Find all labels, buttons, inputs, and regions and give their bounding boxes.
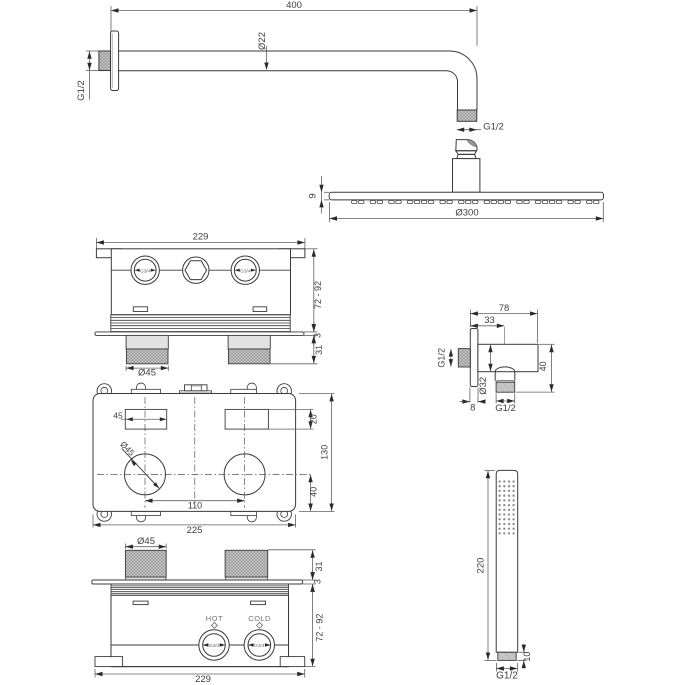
svg-text:Ø45: Ø45 xyxy=(138,368,156,379)
svg-text:40: 40 xyxy=(538,361,548,371)
svg-text:HOT: HOT xyxy=(206,614,223,623)
svg-text:G3/4: G3/4 xyxy=(209,643,220,649)
svg-text:40: 40 xyxy=(309,487,319,497)
svg-text:20: 20 xyxy=(309,414,319,424)
svg-text:72 - 92: 72 - 92 xyxy=(315,614,325,642)
svg-text:Ø32: Ø32 xyxy=(478,377,489,395)
svg-text:229: 229 xyxy=(195,674,211,685)
svg-text:400: 400 xyxy=(286,0,302,11)
svg-text:130: 130 xyxy=(319,445,329,460)
svg-text:229: 229 xyxy=(193,232,209,243)
svg-text:G3/4: G3/4 xyxy=(240,268,251,274)
svg-text:3: 3 xyxy=(313,579,323,584)
svg-text:31: 31 xyxy=(314,561,324,571)
svg-text:G1/2: G1/2 xyxy=(495,403,516,414)
svg-text:72 - 92: 72 - 92 xyxy=(313,281,323,309)
svg-text:G1/2: G1/2 xyxy=(76,80,87,101)
svg-text:Ø300: Ø300 xyxy=(455,208,478,219)
svg-text:COLD: COLD xyxy=(248,614,271,623)
svg-text:G1/2: G1/2 xyxy=(436,348,446,368)
svg-text:10: 10 xyxy=(522,652,532,662)
svg-text:8: 8 xyxy=(470,402,475,413)
svg-text:110: 110 xyxy=(188,500,202,510)
svg-text:78: 78 xyxy=(499,303,510,314)
svg-text:220: 220 xyxy=(476,558,487,574)
svg-text:225: 225 xyxy=(187,525,203,536)
svg-text:G1/2: G1/2 xyxy=(483,122,504,133)
svg-text:G1/2: G1/2 xyxy=(496,671,518,682)
svg-text:Ø45: Ø45 xyxy=(137,536,155,547)
svg-text:45: 45 xyxy=(113,410,123,420)
svg-text:G3/4: G3/4 xyxy=(140,268,151,274)
svg-text:G3/4: G3/4 xyxy=(254,643,265,649)
svg-text:31: 31 xyxy=(314,345,324,355)
svg-text:33: 33 xyxy=(484,315,495,326)
svg-text:9: 9 xyxy=(308,193,319,198)
